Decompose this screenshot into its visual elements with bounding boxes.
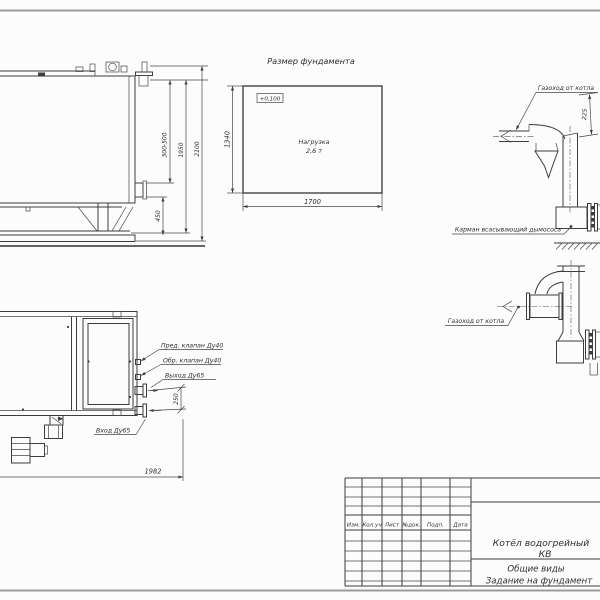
product-title-line2: КВ [539,549,552,560]
boiler-plan-view: Пред. клапан Ду40 Обр. клапан Ду40 Выход… [0,312,223,482]
flue-label-2: Газоход от котла [448,318,504,325]
dim-base-450: 450 [155,210,162,222]
col-koluch: Кол.уч [362,523,382,529]
pocket-label: Карман всасывающий дымососа [455,227,561,234]
dim-length-1982: 1982 [145,468,162,476]
drawing-sheet: 300-500 1950 2100 450 Размер фундамента … [0,0,600,600]
boiler-body [0,76,135,203]
foundation-plan: Размер фундамента +0,100 Нагрузка 2,6 т … [224,56,383,211]
support-base [0,203,205,246]
flue-label-1: Газоход от котла [538,85,594,92]
exhauster-flange-2 [586,330,600,375]
col-data: Дата [452,523,468,529]
flue-outlet-stub [136,62,153,86]
foundation-title: Размер фундамента [267,56,355,66]
ground-hatching [554,243,600,250]
access-panel [83,319,133,410]
dim-height-1950: 1950 [178,142,185,157]
safety-valve-label: Пред. клапан Ду40 [161,343,223,350]
flue-elbow [529,125,565,140]
dim-nozzle-range: 300-500 [162,132,169,157]
check-valve-label: Обр. клапан Ду40 [163,357,221,365]
dim-width-1340: 1340 [224,131,232,148]
suction-pocket-2 [557,341,584,363]
side-view-dimensions: 300-500 1950 2100 450 [131,66,208,241]
dim-offset-225: 225 [581,108,589,120]
col-ndok: №док. [401,523,420,529]
title-block: Изм. Кол.уч Лист №док. Подп. Дата Котёл … [345,478,600,587]
sheet-title-line1: Общие виды [507,565,564,575]
motor [12,438,31,464]
flue-duct-view-top: Газоход от котла [452,85,600,250]
smoke-exhauster [12,416,64,464]
port-spacing-dim: 250 [150,384,186,414]
load-label-line2: 2,6 т [306,147,322,155]
outlet-label: Выход Ду65 [165,373,204,380]
exhauster-flange [588,204,600,232]
cyclone-collector [535,151,558,178]
boiler-side-view: 300-500 1950 2100 450 [0,62,208,246]
check-valve-stub [136,375,141,380]
foundation-dimensions: 1700 1340 [224,86,383,211]
outlet-nozzle [135,384,158,397]
sheet-title-line2: Задание на фундамент [486,577,593,587]
safety-valve-stub [136,360,141,365]
dim-total-height-2100: 2100 [194,141,201,156]
inlet-label: Вход Ду65 [96,428,130,435]
boiler-drawing-canvas: 300-500 1950 2100 450 Размер фундамента … [0,0,600,600]
top-fitting [38,73,45,77]
elevation-mark: +0,100 [260,96,281,102]
load-label-line1: Нагрузка [298,138,329,146]
length-dim: 1982 [0,419,183,481]
col-podp: Подп. [427,523,444,529]
col-list: Лист [384,523,400,529]
product-title-line1: Котёл водогрейный [493,538,589,549]
plan-view-callouts: Пред. клапан Ду40 Обр. клапан Ду40 Выход… [94,343,223,435]
dim-ports-250: 250 [173,393,180,405]
dim-length-1700: 1700 [304,198,321,206]
flue-dim-225: 225 [579,93,598,138]
col-izm: Изм. [347,523,360,529]
flue-duct-view-side: Газоход от котла [445,260,600,375]
lower-nozzle [135,181,147,199]
